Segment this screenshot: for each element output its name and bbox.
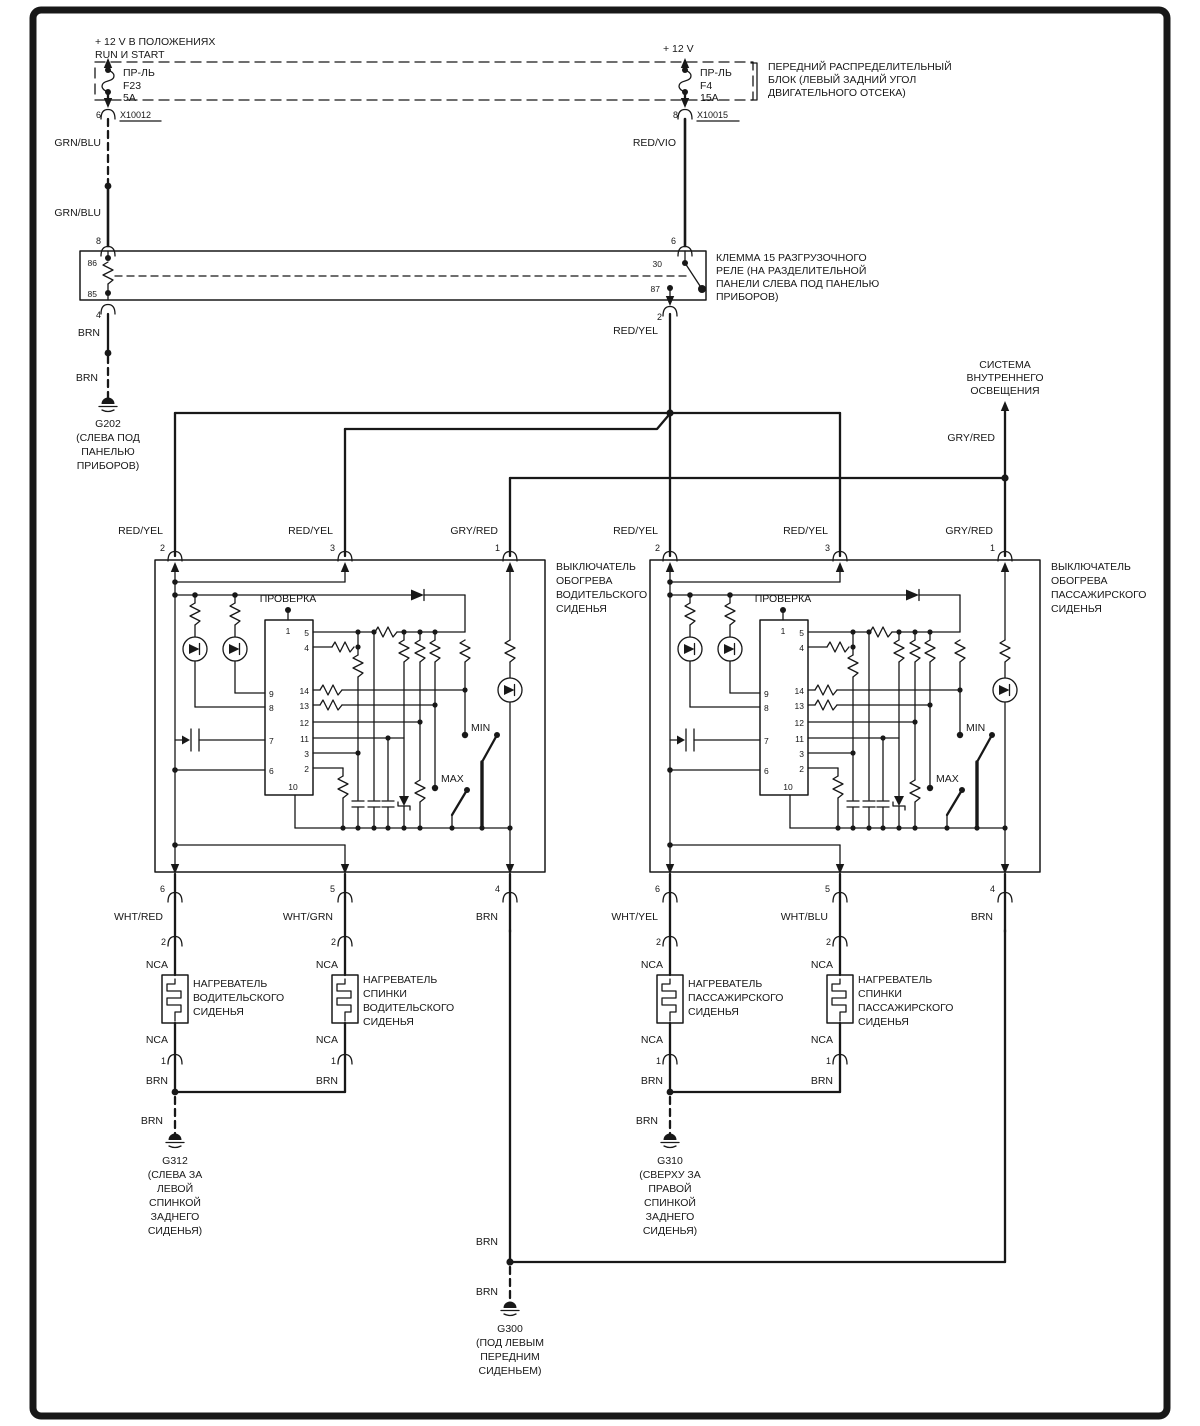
seat-heater-switch: RED/YEL RED/YEL GRY/RED 2 3 1 ПРОВЕРКА 1: [118, 525, 545, 932]
svg-text:РЕЛЕ (НА РАЗДЕЛИТЕЛЬНОЙ: РЕЛЕ (НА РАЗДЕЛИТЕЛЬНОЙ: [716, 264, 866, 277]
svg-text:ПАССАЖИРСКОГО: ПАССАЖИРСКОГО: [858, 1002, 953, 1014]
svg-text:СИДЕНЬЯ: СИДЕНЬЯ: [1051, 603, 1102, 615]
junction-dot: [506, 1258, 513, 1265]
svg-text:12: 12: [300, 718, 310, 728]
heater-captions: НАГРЕВАТЕЛЬ ВОДИТЕЛЬСКОГО СИДЕНЬЯ НАГРЕВ…: [193, 974, 953, 1028]
svg-text:13: 13: [300, 701, 310, 711]
svg-text:ЛЕВОЙ: ЛЕВОЙ: [157, 1182, 193, 1195]
svg-text:ЗАДНЕГО: ЗАДНЕГО: [151, 1211, 200, 1223]
svg-text:ЗАДНЕГО: ЗАДНЕГО: [646, 1211, 695, 1223]
switch-pin: 4: [495, 884, 500, 894]
svg-text:НАГРЕВАТЕЛЬ: НАГРЕВАТЕЛЬ: [363, 974, 437, 986]
svg-text:F4: F4: [700, 80, 712, 92]
relay-pin-out: 2: [657, 312, 662, 322]
switch-pin: 3: [330, 543, 335, 553]
svg-text:15A: 15A: [700, 92, 719, 104]
wire-color: BRN: [476, 1286, 498, 1298]
relay-pin-30: 30: [653, 259, 663, 269]
heater-driver-seat: [146, 897, 188, 1092]
svg-text:ПРАВОЙ: ПРАВОЙ: [648, 1182, 691, 1195]
wire-color: RED/YEL: [118, 525, 163, 537]
min-label: MIN: [471, 722, 490, 734]
power-feed-label: + 12 V: [663, 43, 694, 55]
wire-color: GRN/BLU: [54, 137, 101, 149]
relay-pin-out: 4: [96, 310, 101, 320]
ground-id: G310: [657, 1155, 683, 1167]
switch-pin: 2: [160, 543, 165, 553]
connector-id: X10012: [120, 110, 151, 120]
wire-color: GRY/RED: [947, 432, 995, 444]
svg-text:(СЛЕВА ЗА: (СЛЕВА ЗА: [148, 1169, 203, 1181]
svg-text:3: 3: [304, 749, 309, 759]
svg-text:СПИНКОЙ: СПИНКОЙ: [149, 1196, 201, 1209]
svg-text:7: 7: [269, 736, 274, 746]
svg-text:(СВЕРХУ ЗА: (СВЕРХУ ЗА: [639, 1169, 701, 1181]
wire-color: BRN: [78, 327, 100, 339]
power-feed-label: + 12 V В ПОЛОЖЕНИЯХ: [95, 36, 215, 48]
fuse-f4: + 12 V ПР-ЛЬ F4 15A 8 X10015: [663, 43, 739, 121]
mosfet-icon: [182, 736, 190, 745]
svg-text:ПАССАЖИРСКОГО: ПАССАЖИРСКОГО: [1051, 589, 1146, 601]
wire-color: GRN/BLU: [54, 207, 101, 219]
power-routing: RED/YEL: [175, 314, 840, 556]
heater-passenger-backrest: [811, 897, 853, 1092]
svg-text:СПИНКОЙ: СПИНКОЙ: [644, 1196, 696, 1209]
label-bracket: [751, 63, 757, 100]
zener-diode-icon: [399, 796, 409, 806]
svg-text:4: 4: [304, 643, 309, 653]
svg-text:9: 9: [269, 689, 274, 699]
svg-text:2: 2: [304, 764, 309, 774]
wire-color: WHT/RED: [114, 911, 163, 923]
ground-id: G202: [95, 418, 121, 430]
ground-g310: BRN G310 (СВЕРХУ ЗА ПРАВОЙ СПИНКОЙ ЗАДНЕ…: [636, 1089, 840, 1237]
ground-g312: BRN G312 (СЛЕВА ЗА ЛЕВОЙ СПИНКОЙ ЗАДНЕГО…: [141, 1089, 345, 1237]
svg-text:ДВИГАТЕЛЬНОГО ОТСЕКА): ДВИГАТЕЛЬНОГО ОТСЕКА): [768, 87, 906, 99]
svg-text:10: 10: [288, 782, 298, 792]
ground-g202: BRN BRN G202 (СЛЕВА ПОД ПАНЕЛЬЮ ПРИБОРОВ…: [76, 314, 140, 472]
svg-text:ВОДИТЕЛЬСКОГО: ВОДИТЕЛЬСКОГО: [193, 992, 284, 1004]
svg-text:(ПОД ЛЕВЫМ: (ПОД ЛЕВЫМ: [476, 1337, 544, 1349]
svg-text:СИДЕНЬЯ: СИДЕНЬЯ: [363, 1016, 414, 1028]
svg-text:ВЫКЛЮЧАТЕЛЬ: ВЫКЛЮЧАТЕЛЬ: [556, 561, 636, 573]
relay-contact-arm: [685, 263, 702, 289]
svg-text:(СЛЕВА ПОД: (СЛЕВА ПОД: [76, 432, 140, 444]
connector-pin: 6: [96, 110, 101, 120]
wire-color: WHT/YEL: [611, 911, 658, 923]
svg-text:RUN И START: RUN И START: [95, 49, 165, 61]
fuse-f23: + 12 V В ПОЛОЖЕНИЯХ RUN И START ПР-ЛЬ F2…: [95, 36, 215, 121]
svg-text:ВОДИТЕЛЬСКОГО: ВОДИТЕЛЬСКОГО: [363, 1002, 454, 1014]
svg-text:НАГРЕВАТЕЛЬ: НАГРЕВАТЕЛЬ: [858, 974, 932, 986]
feed-wires: GRN/BLU GRN/BLU 8 RED/VIO 6: [54, 119, 685, 246]
svg-text:СИДЕНЬЯ: СИДЕНЬЯ: [193, 1006, 244, 1018]
wire-color: WHT/BLU: [781, 911, 828, 923]
svg-text:СИДЕНЬЯ): СИДЕНЬЯ): [148, 1225, 202, 1237]
svg-text:14: 14: [300, 686, 310, 696]
switch-captions: ВЫКЛЮЧАТЕЛЬ ОБОГРЕВА ВОДИТЕЛЬСКОГО СИДЕН…: [556, 561, 1146, 615]
svg-text:ПАНЕЛИ СЛЕВА ПОД ПАНЕЛЬЮ: ПАНЕЛИ СЛЕВА ПОД ПАНЕЛЬЮ: [716, 278, 880, 290]
svg-text:ПРИБОРОВ): ПРИБОРОВ): [77, 460, 139, 472]
svg-text:НАГРЕВАТЕЛЬ: НАГРЕВАТЕЛЬ: [688, 978, 762, 990]
svg-text:ОБОГРЕВА: ОБОГРЕВА: [556, 575, 612, 587]
wire-color: RED/YEL: [613, 325, 658, 337]
ground-id: G312: [162, 1155, 188, 1167]
svg-text:ПР-ЛЬ: ПР-ЛЬ: [123, 67, 155, 79]
svg-text:11: 11: [300, 734, 309, 744]
switch-pin: 6: [160, 884, 165, 894]
ground-id: G300: [497, 1323, 523, 1335]
wire-color: BRN: [476, 911, 498, 923]
svg-text:СИДЕНЬЯ: СИДЕНЬЯ: [688, 1006, 739, 1018]
heater-passenger-seat: [641, 897, 683, 1092]
svg-text:СИДЕНЬЕМ): СИДЕНЬЕМ): [479, 1365, 542, 1377]
svg-text:ОСВЕЩЕНИЯ: ОСВЕЩЕНИЯ: [970, 385, 1039, 397]
wire-color: BRN: [476, 1236, 498, 1248]
svg-text:ВНУТРЕННЕГО: ВНУТРЕННЕГО: [966, 372, 1043, 384]
relay-pin: 6: [671, 236, 676, 246]
seat-heater-switch-passenger: [613, 525, 1040, 932]
diode-icon: [411, 590, 424, 601]
wire-color: WHT/GRN: [283, 911, 333, 923]
svg-text:ПАНЕЛЬЮ: ПАНЕЛЬЮ: [81, 446, 135, 458]
relay-pin: 8: [96, 236, 101, 246]
front-distribution-block: ПЕРЕДНИЙ РАСПРЕДЕЛИТЕЛЬНЫЙ БЛОК (ЛЕВЫЙ З…: [95, 36, 952, 121]
svg-text:ПРИБОРОВ): ПРИБОРОВ): [716, 291, 778, 303]
relay-caption: КЛЕММА 15 РАЗГРУЗОЧНОГО: [716, 252, 867, 264]
wire-color: BRN: [141, 1115, 163, 1127]
relay-pin-87: 87: [651, 284, 661, 294]
wire-color: GRY/RED: [450, 525, 498, 537]
svg-text:6: 6: [269, 766, 274, 776]
svg-text:СПИНКИ: СПИНКИ: [858, 988, 902, 1000]
svg-text:ПЕРЕДНИМ: ПЕРЕДНИМ: [480, 1351, 540, 1363]
relay-pin-86: 86: [88, 258, 98, 268]
switch-pin: 5: [330, 884, 335, 894]
switch-pin: 1: [495, 543, 500, 553]
heater-wire-labels: WHT/RED WHT/GRN WHT/YEL WHT/BLU: [114, 911, 828, 923]
system-label: СИСТЕМА: [979, 359, 1031, 371]
svg-text:8: 8: [269, 703, 274, 713]
svg-text:ВОДИТЕЛЬСКОГО: ВОДИТЕЛЬСКОГО: [556, 589, 647, 601]
relay-k15: 86 85 30 87 4 2 КЛЕММА 15 РАЗГРУЗОЧНОГО …: [80, 247, 880, 323]
svg-text:СПИНКИ: СПИНКИ: [363, 988, 407, 1000]
connector-id: X10015: [697, 110, 728, 120]
wire-color: BRN: [76, 372, 98, 384]
svg-text:БЛОК (ЛЕВЫЙ ЗАДНИЙ УГОЛ: БЛОК (ЛЕВЫЙ ЗАДНИЙ УГОЛ: [768, 73, 916, 86]
wiring-diagram-page: 2 NCA NCA 1 BRN ПЕРЕДНИЙ РАСПРЕДЕЛИТЕЛЬН…: [0, 0, 1200, 1426]
max-label: MAX: [441, 773, 464, 785]
relay-pin-85: 85: [88, 289, 98, 299]
heater-driver-backrest: [316, 897, 358, 1092]
svg-text:СИДЕНЬЯ: СИДЕНЬЯ: [858, 1016, 909, 1028]
svg-text:5A: 5A: [123, 92, 136, 104]
svg-text:1: 1: [286, 626, 291, 636]
wire-color: BRN: [636, 1115, 658, 1127]
svg-text:ПР-ЛЬ: ПР-ЛЬ: [700, 67, 732, 79]
svg-text:ОБОГРЕВА: ОБОГРЕВА: [1051, 575, 1107, 587]
test-label: ПРОВЕРКА: [260, 593, 317, 605]
svg-text:ВЫКЛЮЧАТЕЛЬ: ВЫКЛЮЧАТЕЛЬ: [1051, 561, 1131, 573]
wire-color: RED/VIO: [633, 137, 676, 149]
svg-text:F23: F23: [123, 80, 141, 92]
svg-text:СИДЕНЬЯ): СИДЕНЬЯ): [643, 1225, 697, 1237]
connector-pin: 8: [673, 110, 678, 120]
wire-color: RED/YEL: [288, 525, 333, 537]
dist-block-label: ПЕРЕДНИЙ РАСПРЕДЕЛИТЕЛЬНЫЙ: [768, 60, 952, 73]
svg-text:НАГРЕВАТЕЛЬ: НАГРЕВАТЕЛЬ: [193, 978, 267, 990]
svg-text:ПАССАЖИРСКОГО: ПАССАЖИРСКОГО: [688, 992, 783, 1004]
svg-text:5: 5: [304, 628, 309, 638]
page-frame: [33, 10, 1167, 1416]
svg-text:СИДЕНЬЯ: СИДЕНЬЯ: [556, 603, 607, 615]
seat-heating-wiring-diagram: 2 NCA NCA 1 BRN ПЕРЕДНИЙ РАСПРЕДЕЛИТЕЛЬН…: [0, 0, 1200, 1426]
